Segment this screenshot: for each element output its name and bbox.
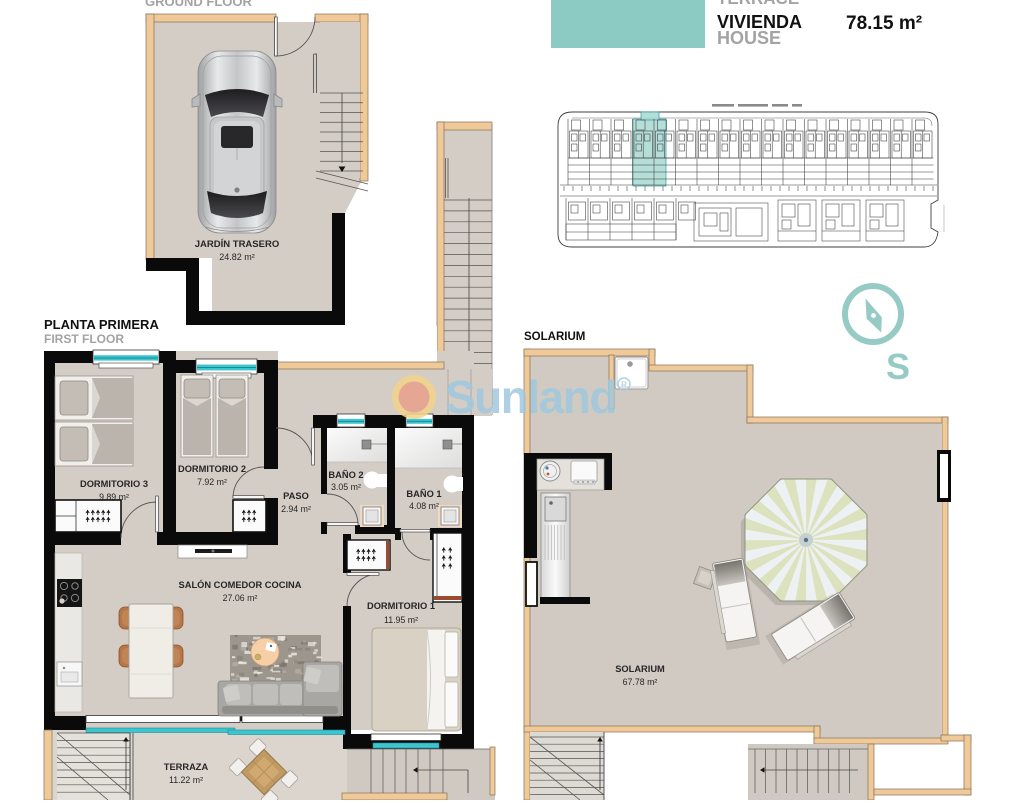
svg-text:S: S bbox=[886, 346, 910, 387]
svg-text:3.05 m²: 3.05 m² bbox=[331, 482, 361, 492]
svg-text:11.95 m²: 11.95 m² bbox=[384, 615, 418, 625]
svg-text:DORMITORIO 3: DORMITORIO 3 bbox=[80, 479, 148, 489]
svg-text:BAÑO 1: BAÑO 1 bbox=[406, 489, 441, 499]
svg-text:11.22 m²: 11.22 m² bbox=[169, 775, 203, 785]
svg-text:JARDÍN TRASERO: JARDÍN TRASERO bbox=[195, 239, 279, 250]
svg-text:78.15 m²: 78.15 m² bbox=[846, 13, 922, 34]
svg-text:7.92 m²: 7.92 m² bbox=[197, 477, 227, 487]
svg-text:2.94 m²: 2.94 m² bbox=[281, 504, 311, 514]
svg-text:67.78 m²: 67.78 m² bbox=[623, 677, 658, 687]
svg-text:GROUND FLOOR: GROUND FLOOR bbox=[145, 0, 252, 9]
svg-text:9.89 m²: 9.89 m² bbox=[99, 492, 129, 502]
svg-text:R: R bbox=[621, 381, 627, 390]
svg-text:SOLARIUM: SOLARIUM bbox=[524, 331, 585, 343]
svg-text:HOUSE: HOUSE bbox=[717, 28, 781, 48]
svg-text:24.82 m²: 24.82 m² bbox=[219, 252, 255, 262]
svg-text:4.08 m²: 4.08 m² bbox=[409, 501, 439, 511]
svg-text:TERRACE: TERRACE bbox=[717, 0, 799, 8]
svg-text:DORMITORIO 2: DORMITORIO 2 bbox=[178, 464, 246, 474]
svg-text:SOLARIUM: SOLARIUM bbox=[615, 664, 665, 674]
svg-text:27.06 m²: 27.06 m² bbox=[223, 593, 258, 603]
svg-text:PASO: PASO bbox=[283, 491, 309, 501]
svg-text:SALÓN COMEDOR COCINA: SALÓN COMEDOR COCINA bbox=[179, 579, 302, 590]
svg-text:FIRST FLOOR: FIRST FLOOR bbox=[44, 332, 124, 346]
svg-text:PLANTA PRIMERA: PLANTA PRIMERA bbox=[44, 317, 159, 332]
svg-text:TERRAZA: TERRAZA bbox=[164, 762, 209, 772]
svg-text:BAÑO 2: BAÑO 2 bbox=[328, 470, 363, 480]
svg-text:DORMITORIO 1: DORMITORIO 1 bbox=[367, 601, 435, 611]
svg-text:Sunland: Sunland bbox=[445, 371, 616, 423]
